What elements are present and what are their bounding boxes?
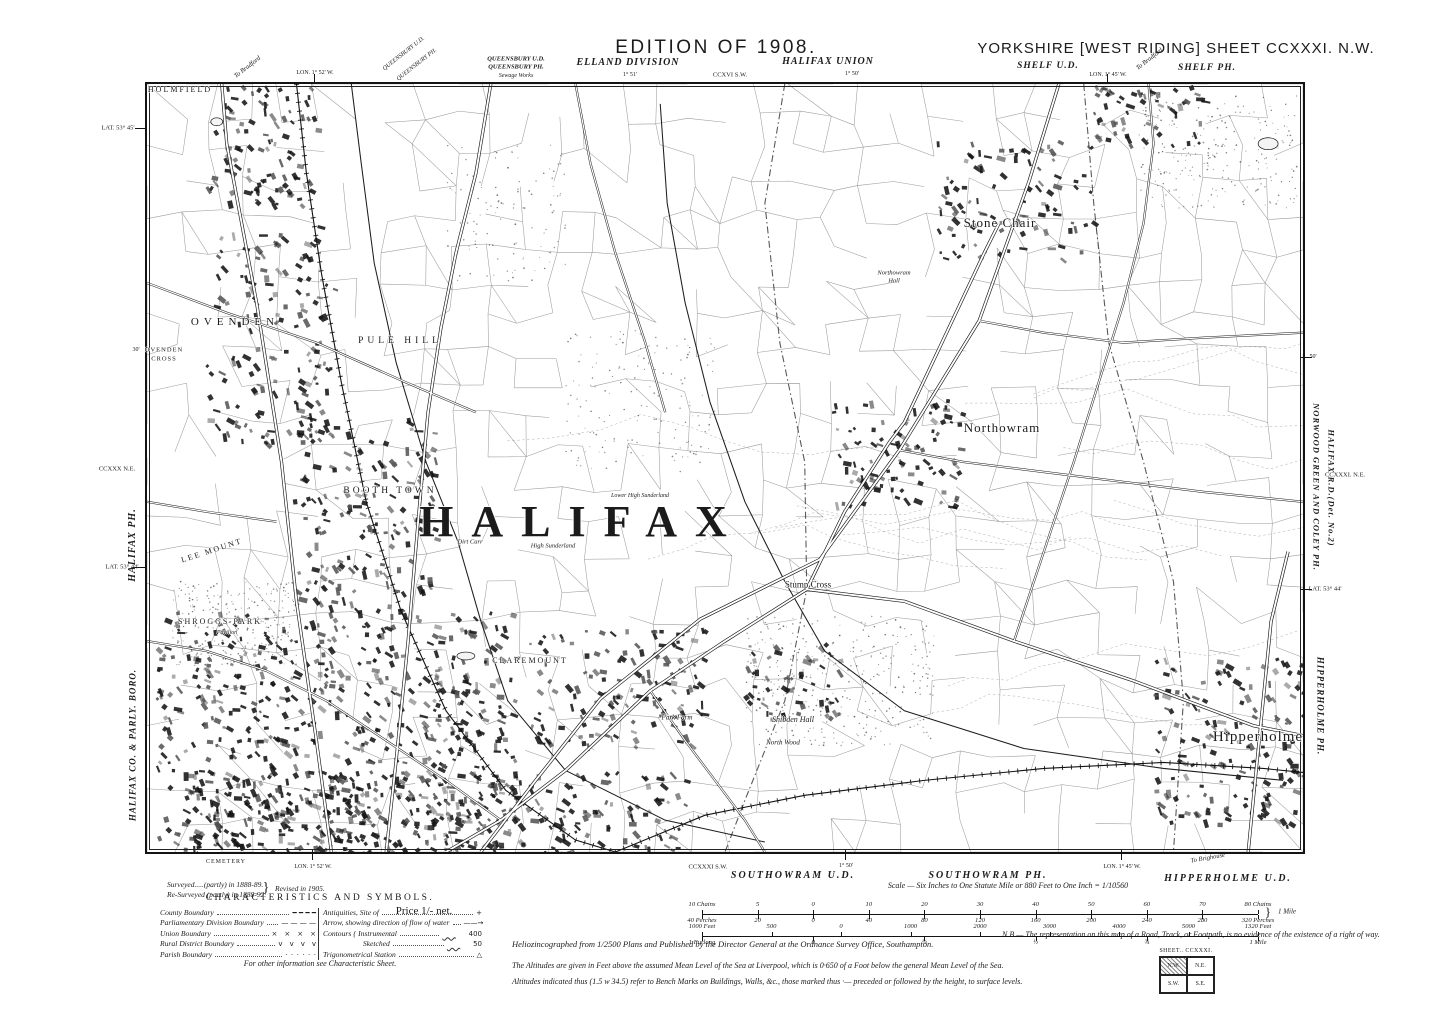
legend-leader [214,935,269,936]
scale-tick-label: ¼ [922,939,927,946]
legend-item-label: Parish Boundary [160,950,212,959]
survey-line-2: Re-Surveyed (partly) in 1888-92. [167,891,266,899]
scale-tick-label: 280 [1197,917,1207,924]
map-frame [145,82,1305,854]
edition-label: EDITION OF 1908. [615,38,817,58]
legend-row: Antiquities, Site of+ [323,906,482,917]
graticule-tick [135,567,147,568]
scale-tick-label: 4000 [1112,923,1125,930]
scale-bar-line [702,914,1258,915]
railways-layer [296,84,1303,852]
scale-tick [702,910,703,914]
to-bradford-left: To Bradford [233,56,262,81]
scale-tick [1202,915,1203,919]
sheet-index-cell-ne: N.E. [1187,957,1214,975]
scale-tick [1091,910,1092,914]
scale-mile-brace: } [1265,905,1271,919]
scale-caption: Scale — Six Inches to One Statute Mile o… [888,882,1128,890]
legend-item-label: Contours { Instrumental [323,929,397,938]
scale-tick-label: 50 [1088,901,1095,908]
scale-tick [702,937,703,941]
sheet-title: YORKSHIRE [WEST RIDING] SHEET CCXXXI. N.… [977,41,1374,57]
scale-tick [1258,915,1259,919]
graticule-tick [135,128,147,129]
contour-value: 400 [466,930,482,938]
scale-tick-label: 80 Chains [1245,901,1272,908]
sheet-index-title: SHEET.. CCXXXI. [1159,948,1212,954]
legend-symbol: + [476,909,482,917]
scale-tick [1147,910,1148,914]
adjacent-sheet-ccxxxi-sw: CCXXXI S.W. [689,865,728,872]
scale-tick-label: 1320 Feet [1245,923,1272,930]
scale-tick-label: 0 [812,901,815,908]
scale-tick-label: 30 [977,901,984,908]
graticule-tick [1300,589,1312,590]
altitude-note-1: The Altitudes are given in Feet above th… [512,962,1003,970]
legend-symbol: 50 [447,940,482,948]
sewage-works-label: Sewage Works [499,73,534,79]
legend-symbol: — — — — [281,919,316,927]
scale-tick-label: 0 [812,939,815,946]
queensbury-ph-label: QUEENSBURY PH. [488,65,544,72]
scale-tick [758,915,759,919]
sheet-index-cell-se: S.E. [1187,975,1214,993]
adjacent-sheet-ccxxx-ne: CCXXX N.E. [99,467,135,474]
lon-1-45-top: LON. 1° 45' W. [1089,72,1126,78]
to-brighouse-label: To Brighouse [1190,853,1225,866]
legend-leader [267,924,279,925]
lon-1-50-bottom: 1° 50' [839,863,853,869]
scale-tick [1258,937,1259,941]
lat-53-44-right: LAT. 53° 44' [1308,587,1341,594]
legend-divider [318,908,319,960]
halifax-boro-margin: HALIFAX CO. & PARLY. BORO. [128,669,137,821]
legend-item-label: County Boundary [160,908,214,917]
scale-tick-label: 240 [1142,917,1152,924]
graticule-tick [845,850,846,860]
ponds-layer [211,118,1278,660]
scale-tick-label: 0 [812,917,815,924]
scale-tick [1147,937,1148,941]
graticule-tick [314,74,315,84]
lat-53-45-left: LAT. 53° 45' [101,126,134,133]
scale-tick [702,932,703,936]
min-30-left: 30' [132,347,139,353]
scale-tick [1036,910,1037,914]
scale-tick [813,910,814,914]
legend-row: Trigonometrical Station△ [323,948,482,959]
lon-1-50-top: 1° 50' [845,71,859,77]
scale-tick-label: ½ [1033,939,1038,946]
scale-tick [1202,910,1203,914]
legend-leader [400,935,439,936]
scale-tick [1258,932,1259,936]
norwood-green-coley-ph-margin: NORWOOD GREEN AND COLEY PH. [1312,403,1321,571]
characteristics-legend: County Boundary━ ━ ━ ━Parliamentary Divi… [160,906,482,962]
lon-1-45-bottom: LON. 1° 45' W. [1103,864,1140,870]
elland-division-label: ELLAND DIVISION [576,58,679,69]
southowram-ph-label: SOUTHOWRAM PH. [928,871,1047,882]
legend-item-label: Sketched [323,939,390,948]
scale-tick-label: 3000 [1043,923,1056,930]
scale-tick [1036,937,1037,941]
scale-tick [1189,932,1190,936]
lon-1-52-bottom: LON. 1° 52' W. [294,864,331,870]
lat-53-44-left: LAT. 53° 44' [105,565,138,572]
scale-tick [924,915,925,919]
contours-layer [507,334,1303,724]
admin-boundaries-layer [725,84,1183,852]
scale-tick-label: 10 [866,901,873,908]
legend-row: Sketched 50 [323,938,482,949]
halifax-rd-margin: HALIFAX R.D.(Det. No.2) [1327,429,1336,546]
scale-tick-label: 5 [756,901,759,908]
scale-tick-label: 160 [1031,917,1041,924]
scale-tick-label: 80 [921,917,928,924]
scale-tick-label: 40 [866,917,873,924]
scale-tick-label: 40 Perches [687,917,716,924]
scale-tick [1050,932,1051,936]
cemetery-label: CEMETERY [206,859,246,865]
scale-tick [1091,915,1092,919]
imprint-line: Heliozincographed from 1/2500 Plans and … [512,940,933,949]
scale-tick [980,932,981,936]
scale-tick-label: 70 [1199,901,1206,908]
legend-symbol: v v v v [278,940,316,948]
sheet-index-cell-sw: S.W. [1160,975,1187,993]
legend-row: Arrow, showing direction of flow of wate… [323,917,482,928]
queensbury-ud-label: QUEENSBURY U.D. [487,57,545,64]
legend-row: Union Boundary× × × × [160,927,316,938]
legend-leader [399,956,474,957]
survey-line-1: Surveyed.....(partly) in 1888-89. [167,881,263,889]
scale-tick [869,915,870,919]
scale-tick-label: 10 Chains [689,901,716,908]
southowram-ud-label: SOUTHOWRAM U.D. [731,871,855,882]
scale-tick [813,937,814,941]
contour-squiggle [447,940,471,948]
scale-tick-label: 20 [754,917,761,924]
scale-tick [1147,915,1148,919]
contour-squiggle [442,930,466,938]
scale-tick-label: 5000 [1182,923,1195,930]
urban-blocks-layer [155,85,1303,852]
scale-tick-label: ¾ [1144,939,1149,946]
legend-leader [217,914,290,915]
legend-left-column: County Boundary━ ━ ━ ━Parliamentary Divi… [160,906,316,959]
nb-note: N.B.— The representation on this map of … [1002,931,1442,939]
scale-tick-label: 120 [975,917,985,924]
legend-row: Parliamentary Division Boundary— — — — [160,917,316,928]
scale-tick-label: 40 [1032,901,1039,908]
lon-1-52-top: LON. 1° 52' W. [296,70,333,76]
shelf-ph-label: SHELF PH. [1178,64,1236,74]
hipperholme-ph-margin: HIPPERHOLME PH. [1315,657,1324,756]
legend-leader [215,956,282,957]
legend-item-label: Parliamentary Division Boundary [160,918,264,927]
legend-leader [393,945,444,946]
contour-value: 50 [471,940,482,948]
scale-tick [1119,932,1120,936]
scale-tick [772,932,773,936]
scale-tick [869,910,870,914]
os-map-sheet: HOLMFIELDOVENDENOVENDENCROSSPULE HILLBOO… [0,0,1445,1022]
scale-tick-label: 1 Furlong [689,939,716,946]
halifax-union-label: HALIFAX UNION [782,57,874,68]
sheet-index-diagram: N.W.N.E.S.W.S.E. [1159,956,1215,994]
legend-leader [382,914,473,915]
queensbury-ph-diagonal: QUEENSBURY PH. [396,47,438,82]
legend-item-label: Rural District Boundary [160,939,234,948]
adjacent-sheet-ccxvi-sw: CCXVI S.W. [713,73,747,80]
lon-1-51-top: 1° 51' [623,72,637,78]
adjacent-sheet-ccxxxi-ne: CCXXXI. N.E. [1325,473,1365,480]
sheet-index-cell-nw: N.W. [1160,957,1187,975]
map-artwork [147,84,1303,852]
legend-row: Contours { Instrumental 400 [323,927,482,938]
scale-bar-line [702,936,1258,937]
scale-tick-label: 1 Mile [1249,939,1266,946]
legend-leader [237,945,275,946]
scale-tick-label: 2000 [973,923,986,930]
legend-row: County Boundary━ ━ ━ ━ [160,906,316,917]
scale-tick [841,932,842,936]
legend-item-label: Arrow, showing direction of flow of wate… [323,918,450,927]
scale-tick-label: 20 [921,901,928,908]
scale-tick [813,915,814,919]
legend-symbol: ━ ━ ━ ━ [292,909,316,917]
legend-right-column: Antiquities, Site of+Arrow, showing dire… [323,906,482,959]
scale-tick [980,915,981,919]
scale-tick-label: 320 Perches [1242,917,1275,924]
woodland-stipple-layer [172,93,1297,746]
to-bradford-right: To Bradford [1135,48,1164,73]
legend-row: Rural District Boundaryv v v v [160,938,316,949]
halifax-ph-margin: HALIFAX PH. [128,508,139,581]
altitude-note-2: Altitudes indicated thus (1.5 w 34.5) re… [512,978,1022,986]
sheet-index-grid: N.W.N.E.S.W.S.E. [1159,956,1215,994]
scale-tick-label: 1000 Feet [689,923,716,930]
scale-tick-label: 200 [1086,917,1096,924]
legend-item-label: Union Boundary [160,929,211,938]
graticule-tick [1107,74,1108,84]
legend-symbol: · · · · · · [285,951,316,959]
scale-tick [980,910,981,914]
scale-tick-label: 1000 [904,923,917,930]
scale-tick-label: 500 [767,923,777,930]
scale-tick [911,932,912,936]
graticule-tick [1300,357,1312,358]
hipperholme-ud-label: HIPPERHOLME U.D. [1164,874,1292,885]
legend-row: Parish Boundary· · · · · · [160,948,316,959]
scale-tick [758,910,759,914]
survey-brace: } [263,882,270,897]
scale-tick-label: 0 [839,923,842,930]
graticule-tick [1121,850,1122,860]
scale-tick [924,910,925,914]
legend-item-label: Trigonometrical Station [323,950,396,959]
characteristics-title: CHARACTERISTICS AND SYMBOLS. [206,894,435,904]
scale-tick [702,915,703,919]
scale-tick-label: 60 [1144,901,1151,908]
legend-symbol: 400 [442,930,482,938]
legend-leader [453,924,461,925]
legend-symbol: ——→ [464,919,484,927]
scale-tick [1036,915,1037,919]
legend-item-label: Antiquities, Site of [323,908,379,917]
shelf-ud-label: SHELF U.D. [1017,62,1079,72]
scale-mile-label: 1 Mile [1278,908,1296,915]
legend-symbol: × × × × [272,930,316,938]
legend-symbol: △ [477,951,482,959]
graticule-tick [312,850,313,860]
queensbury-ud-diagonal: QUEENSBURY U.D. [382,36,426,72]
survey-line-3: Revised in 1905. [275,885,325,893]
scale-tick [1258,910,1259,914]
scale-tick [924,937,925,941]
